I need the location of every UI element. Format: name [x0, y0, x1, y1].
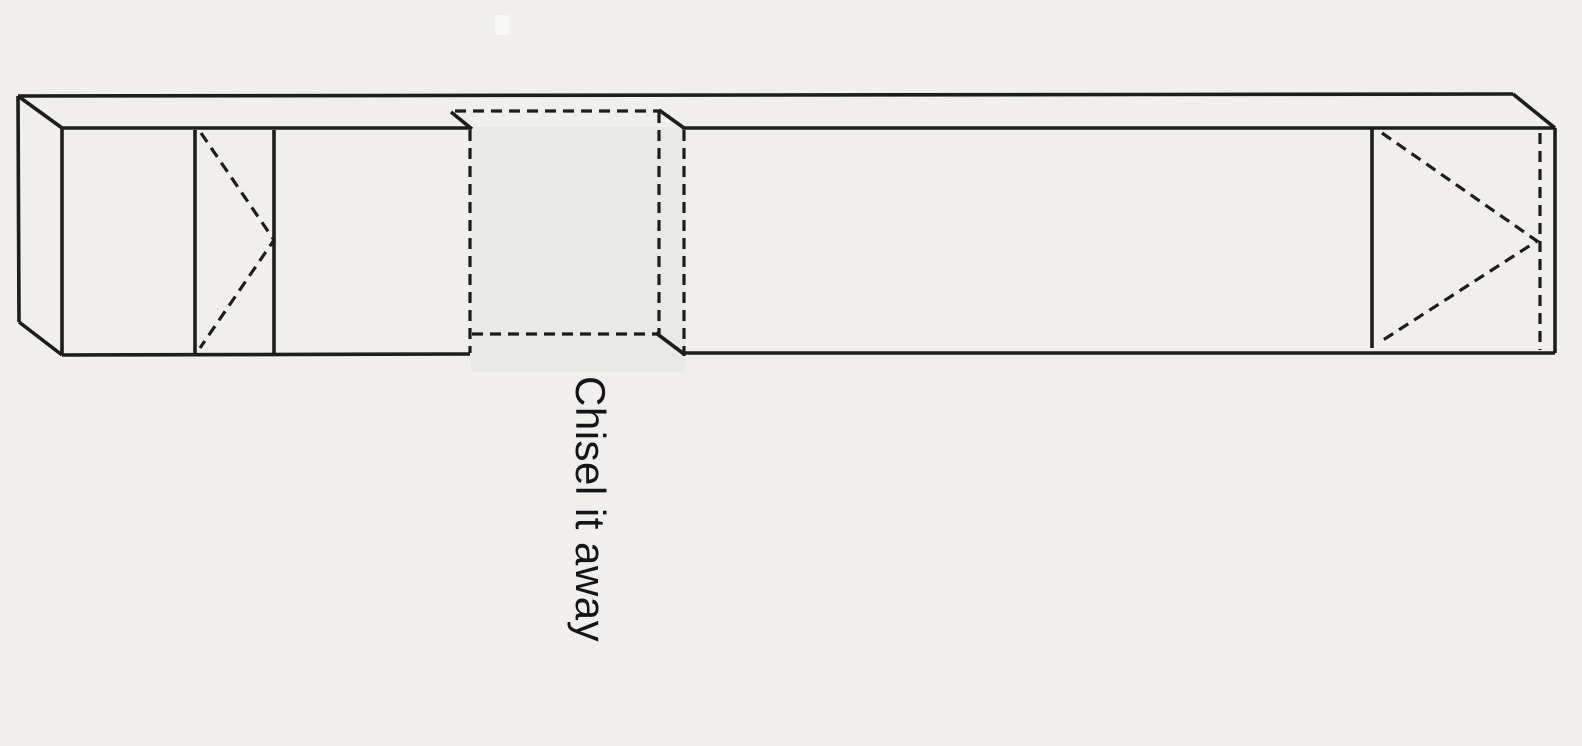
cursor-artifact: [495, 15, 509, 35]
beam-front-bottom-edge-left: [62, 354, 470, 355]
notch-top-right-diagonal: [659, 110, 684, 128]
left-dashed-chevron: [200, 133, 274, 348]
beam-top-left-diagonal: [18, 96, 62, 128]
beam-bottom-left-diagonal: [19, 322, 62, 355]
beam-top-right-diagonal: [1513, 94, 1555, 128]
beam-outline: [18, 94, 1555, 355]
chisel-away-label: Chisel it away: [566, 376, 614, 642]
left-knife-wall-marks: [195, 130, 274, 354]
beam-diagram-svg: [0, 0, 1582, 746]
right-dashed-chevron: [1380, 133, 1537, 342]
beam-top-back-edge: [18, 94, 1513, 96]
right-knife-wall-marks: [1372, 128, 1540, 350]
diagram-canvas: { "annotation": { "label": "Chisel it aw…: [0, 0, 1582, 746]
beam-left-back-edge: [18, 96, 19, 322]
diagram-stage: Chisel it away: [0, 0, 1582, 746]
